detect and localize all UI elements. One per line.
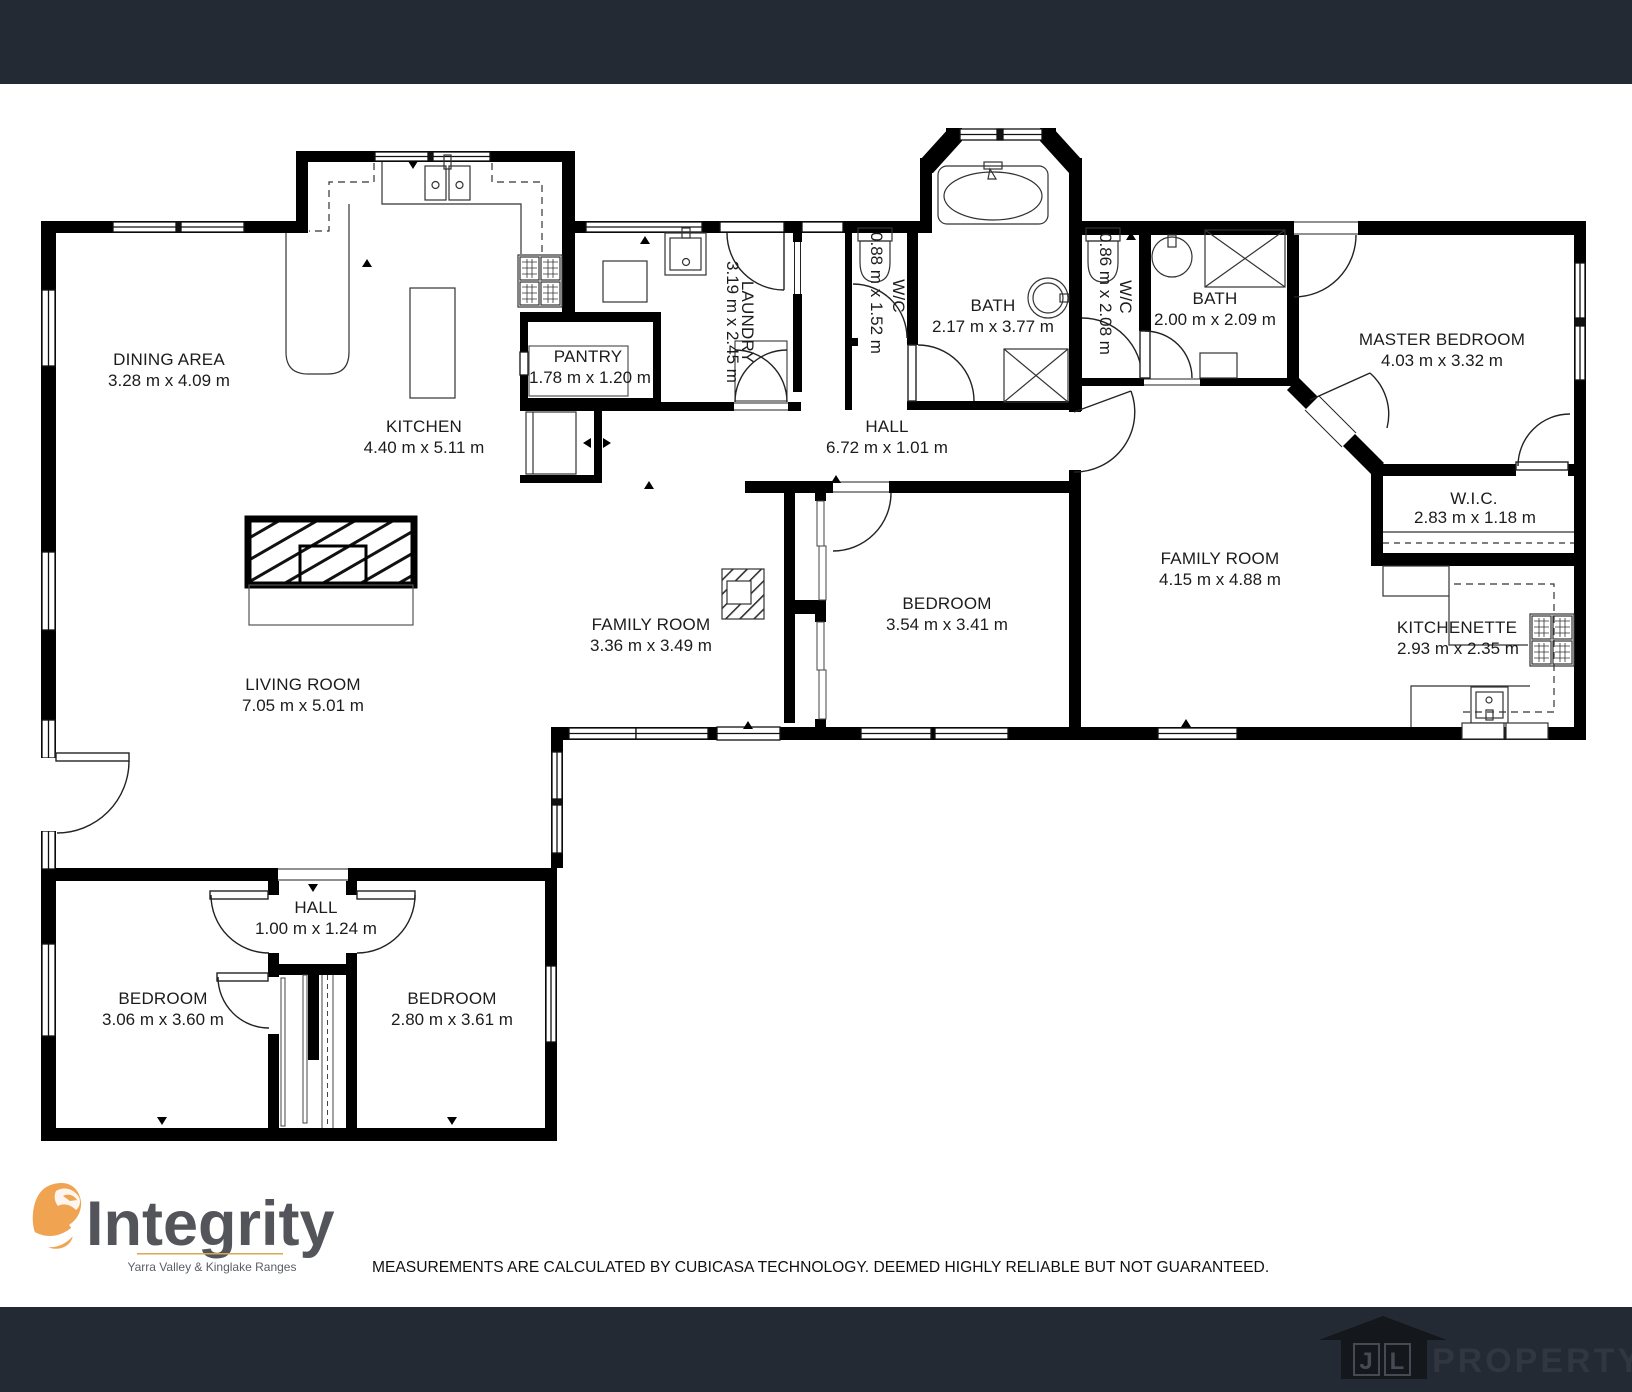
svg-text:J: J — [1359, 1348, 1372, 1375]
svg-text:4.40 m x 5.11 m: 4.40 m x 5.11 m — [364, 438, 485, 457]
svg-text:2.17 m x 3.77 m: 2.17 m x 3.77 m — [932, 317, 1054, 336]
svg-text:3.36 m x 3.49 m: 3.36 m x 3.49 m — [590, 636, 712, 655]
svg-text:HALL: HALL — [294, 898, 337, 917]
svg-text:W/C: W/C — [889, 279, 908, 313]
svg-text:PANTRY: PANTRY — [554, 347, 623, 366]
svg-text:1.00 m x 1.24 m: 1.00 m x 1.24 m — [255, 919, 377, 938]
svg-text:BEDROOM: BEDROOM — [902, 594, 991, 613]
svg-text:KITCHENETTE: KITCHENETTE — [1397, 618, 1517, 637]
svg-text:2.80 m x 3.61 m: 2.80 m x 3.61 m — [391, 1010, 513, 1029]
svg-text:FAMILY ROOM: FAMILY ROOM — [1161, 549, 1280, 568]
svg-text:MASTER BEDROOM: MASTER BEDROOM — [1359, 330, 1525, 349]
svg-text:1.78 m x 1.20 m: 1.78 m x 1.20 m — [529, 368, 651, 387]
svg-text:HALL: HALL — [865, 417, 908, 436]
svg-text:BEDROOM: BEDROOM — [407, 989, 496, 1008]
svg-text:MEASUREMENTS ARE CALCULATED BY: MEASUREMENTS ARE CALCULATED BY CUBICASA … — [372, 1259, 1269, 1276]
svg-text:Integrity: Integrity — [86, 1189, 335, 1259]
svg-text:W/C: W/C — [1116, 280, 1135, 314]
svg-text:2.93 m x 2.35 m: 2.93 m x 2.35 m — [1397, 639, 1519, 658]
svg-text:BATH: BATH — [1193, 289, 1238, 308]
svg-text:LIVING ROOM: LIVING ROOM — [245, 675, 361, 694]
svg-text:KITCHEN: KITCHEN — [386, 417, 462, 436]
svg-text:7.05 m x 5.01 m: 7.05 m x 5.01 m — [242, 696, 364, 715]
svg-text:0.88 m x 1.52 m: 0.88 m x 1.52 m — [867, 232, 886, 354]
svg-text:2.00 m x 2.09 m: 2.00 m x 2.09 m — [1154, 310, 1276, 329]
svg-text:4.03 m x 3.32 m: 4.03 m x 3.32 m — [1381, 351, 1503, 370]
svg-text:Yarra Valley & Kinglake Ranges: Yarra Valley & Kinglake Ranges — [128, 1260, 297, 1274]
svg-text:FAMILY ROOM: FAMILY ROOM — [592, 615, 711, 634]
svg-text:0.86 m x 2.08 m: 0.86 m x 2.08 m — [1096, 233, 1115, 355]
svg-text:DINING AREA: DINING AREA — [113, 350, 225, 369]
svg-text:3.54 m x 3.41 m: 3.54 m x 3.41 m — [886, 615, 1008, 634]
svg-text:W.I.C.: W.I.C. — [1450, 489, 1497, 508]
svg-text:6.72 m x 1.01 m: 6.72 m x 1.01 m — [826, 438, 948, 457]
svg-text:4.15 m x 4.88 m: 4.15 m x 4.88 m — [1159, 570, 1281, 589]
svg-text:3.19 m x 2.45 m: 3.19 m x 2.45 m — [723, 261, 742, 383]
svg-text:2.83 m x 1.18 m: 2.83 m x 1.18 m — [1414, 508, 1536, 527]
svg-text:3.28 m x 4.09 m: 3.28 m x 4.09 m — [108, 371, 230, 390]
svg-text:L: L — [1390, 1348, 1405, 1375]
svg-text:3.06 m x 3.60 m: 3.06 m x 3.60 m — [102, 1010, 224, 1029]
svg-text:BEDROOM: BEDROOM — [118, 989, 207, 1008]
svg-text:PROPERTY: PROPERTY — [1432, 1342, 1632, 1380]
svg-text:BATH: BATH — [971, 296, 1016, 315]
